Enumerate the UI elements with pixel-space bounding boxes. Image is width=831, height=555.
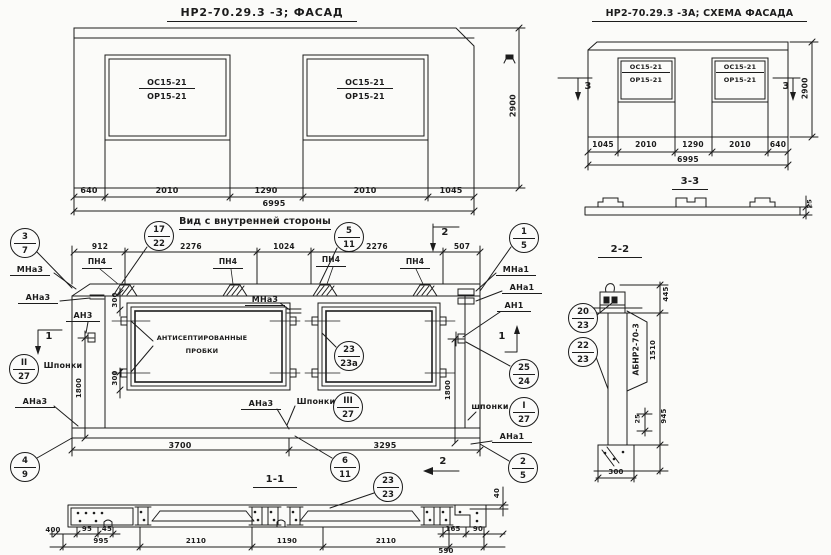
note-antiseptic-line1: АНТИСЕПТИРОВАННЫЕ	[150, 335, 254, 342]
balloon-top: III	[337, 393, 359, 408]
dim-300-top: 300	[111, 280, 119, 320]
balloon-bottom: 27	[10, 370, 38, 383]
schema-window2-mark-top: ОС15-21	[716, 64, 764, 73]
position-balloon-3-7: 37	[10, 228, 40, 258]
label-ana1-top: АНа1	[502, 283, 542, 294]
position-balloon-6-11: 611	[330, 452, 360, 482]
balloon-top: 25	[513, 360, 535, 375]
schema-dim-1045: 1045	[583, 141, 623, 150]
facade-dim-1290: 1290	[246, 186, 286, 195]
schema-dim-640: 640	[758, 141, 798, 150]
cut-mark-2-bottom: 2	[436, 456, 450, 468]
panel-stamp: АБНР2-70-3	[633, 314, 642, 384]
balloon-bottom: 23	[374, 488, 402, 501]
main-dim-2276b: 2276	[357, 243, 397, 252]
balloon-bottom: 11	[335, 238, 363, 251]
s11-dim-1190: 1190	[272, 537, 302, 545]
label-an1: АН1	[497, 301, 531, 312]
s11-dim-45: 45	[97, 525, 117, 533]
label-an3: АН3	[66, 311, 100, 322]
balloon-top: 23	[377, 473, 399, 488]
balloon-top: 3	[14, 229, 36, 244]
s22-dim-445: 445	[662, 274, 670, 314]
main-dim-1024: 1024	[264, 243, 304, 252]
position-balloon-20-23: 2023	[568, 303, 598, 333]
schema-dim-height: 2900	[802, 68, 811, 108]
facade-dim-1045: 1045	[431, 186, 471, 195]
balloon-top: I	[513, 398, 535, 413]
dim-1800-left: 1800	[75, 368, 83, 408]
position-balloon-23-23: 2323	[373, 472, 403, 502]
position-balloon-III-27: III27	[333, 392, 363, 422]
note-antiseptic-line2: ПРОБКИ	[177, 348, 227, 355]
facade-dim-total: 6995	[254, 199, 294, 208]
s11-dim-400: 400	[40, 526, 66, 534]
main-dim-912: 912	[80, 243, 120, 252]
s11-dim-90: 90	[469, 525, 487, 533]
position-balloon-II-27: II27	[9, 354, 39, 384]
position-balloon-25-24: 2524	[509, 359, 539, 389]
s11-dim-590: 590	[434, 547, 458, 555]
drawing-linework	[0, 0, 831, 555]
balloon-bottom: 9	[11, 468, 39, 481]
facade-window2-mark-bottom: ОР15-21	[337, 92, 393, 101]
balloon-top: 22	[572, 338, 594, 353]
facade-window1-mark-top: ОС15-21	[139, 78, 195, 89]
main-dim-507: 507	[442, 243, 482, 252]
s22-dim-25: 25	[634, 399, 641, 439]
s11-dim-2110a: 2110	[181, 537, 211, 545]
schema-dim-total: 6995	[668, 156, 708, 165]
cut-mark-1-left: 1	[43, 331, 55, 343]
position-balloon-22-23: 2223	[568, 337, 598, 367]
balloon-top: 5	[338, 223, 360, 238]
balloon-bottom: 7	[11, 244, 39, 257]
schema-cut-mark-right: 3	[779, 81, 793, 93]
s11-dim-2110b: 2110	[371, 537, 401, 545]
schema-dim-2010a: 2010	[626, 141, 666, 150]
balloon-bottom: 5	[509, 469, 537, 482]
position-balloon-5-11: 511	[334, 222, 364, 252]
loop-label-pn4-3: ПН4	[316, 256, 346, 267]
s22-dim-300: 300	[601, 468, 631, 476]
position-balloon-4-9: 49	[10, 452, 40, 482]
schema-cut-mark-left: 3	[581, 81, 595, 93]
schema-dim-2010b: 2010	[720, 141, 760, 150]
label-ana1-bottom: АНа1	[492, 432, 532, 443]
position-balloon-2-5: 25	[508, 453, 538, 483]
loop-label-pn4-4: ПН4	[400, 258, 430, 269]
facade-title: НР2-70.29.3 -3; ФАСАД	[167, 7, 357, 22]
section-1-1-label: 1-1	[253, 474, 297, 488]
profile-dim-25: 25	[806, 184, 813, 224]
balloon-bottom: 23	[569, 319, 597, 332]
technical-drawing-sheet: НР2-70.29.3 -3; ФАСАД ОС15-21 ОР15-21 ОС…	[0, 0, 831, 555]
main-dim-3700: 3700	[160, 441, 200, 450]
schema-window1-mark-top: ОС15-21	[622, 64, 670, 73]
facade-window2-mark-top: ОС15-21	[337, 78, 393, 89]
label-keys-right: шпонки	[468, 402, 512, 411]
facade-dim-2010b: 2010	[345, 186, 385, 195]
cut-mark-1-right: 1	[496, 331, 508, 343]
balloon-bottom: 23а	[335, 357, 363, 370]
balloon-bottom: 11	[331, 468, 359, 481]
s22-dim-945: 945	[660, 396, 668, 436]
balloon-top: 23	[338, 342, 360, 357]
balloon-top: 6	[334, 453, 356, 468]
cut-mark-2-top: 2	[438, 227, 452, 239]
balloon-bottom: 27	[334, 408, 362, 421]
facade-window1-mark-bottom: ОР15-21	[139, 92, 195, 101]
facade-dim-height: 2900	[508, 86, 517, 126]
s11-dim-95: 95	[77, 525, 97, 533]
main-view-title: Вид с внутренней стороны	[179, 217, 331, 230]
section-2-2-label: 2-2	[598, 244, 642, 258]
schema-window1-mark-bottom: ОР15-21	[622, 77, 670, 84]
s11-dim-995: 995	[89, 537, 113, 545]
s22-dim-1510: 1510	[649, 330, 657, 370]
label-ana3-left: АНа3	[18, 293, 58, 304]
balloon-bottom: 23	[569, 353, 597, 366]
label-mna3-center: МНа3	[245, 295, 285, 306]
facade-dim-640: 640	[69, 186, 109, 195]
position-balloon-23-23a: 2323а	[334, 341, 364, 371]
balloon-top: 17	[148, 222, 170, 237]
s11-dim-165: 165	[442, 525, 464, 533]
balloon-top: 20	[572, 304, 594, 319]
dim-1800-right: 1800	[444, 370, 452, 410]
balloon-bottom: 5	[510, 239, 538, 252]
main-dim-3295: 3295	[365, 441, 405, 450]
balloon-bottom: 22	[145, 237, 173, 250]
section-3-3-label: 3-3	[672, 176, 708, 190]
balloon-bottom: 24	[510, 375, 538, 388]
balloon-bottom: 27	[510, 413, 538, 426]
position-balloon-17-22: 1722	[144, 221, 174, 251]
label-keys-center: Шпонки	[294, 397, 338, 406]
label-mna1: МНа1	[496, 265, 536, 276]
balloon-top: II	[13, 355, 35, 370]
balloon-top: 4	[14, 453, 36, 468]
position-balloon-1-5: 15	[509, 223, 539, 253]
label-ana3-bottom-left: АНа3	[15, 397, 55, 408]
schema-window2-mark-bottom: ОР15-21	[716, 77, 764, 84]
label-mna3-left: МНа3	[10, 265, 50, 276]
main-dim-2276a: 2276	[171, 243, 211, 252]
loop-label-pn4-1: ПН4	[82, 258, 112, 269]
balloon-top: 2	[512, 454, 534, 469]
dim-300-bottom: 300	[111, 358, 119, 398]
schema-dim-1290: 1290	[673, 141, 713, 150]
schema-title: НР2-70.29.3 -3А; СХЕМА ФАСАДА	[592, 9, 807, 22]
position-balloon-I-27: I27	[509, 397, 539, 427]
label-ana3-center: АНа3	[241, 399, 281, 410]
balloon-top: 1	[513, 224, 535, 239]
s11-dim-40: 40	[493, 473, 501, 513]
facade-dim-2010a: 2010	[147, 186, 187, 195]
loop-label-pn4-2: ПН4	[213, 258, 243, 269]
